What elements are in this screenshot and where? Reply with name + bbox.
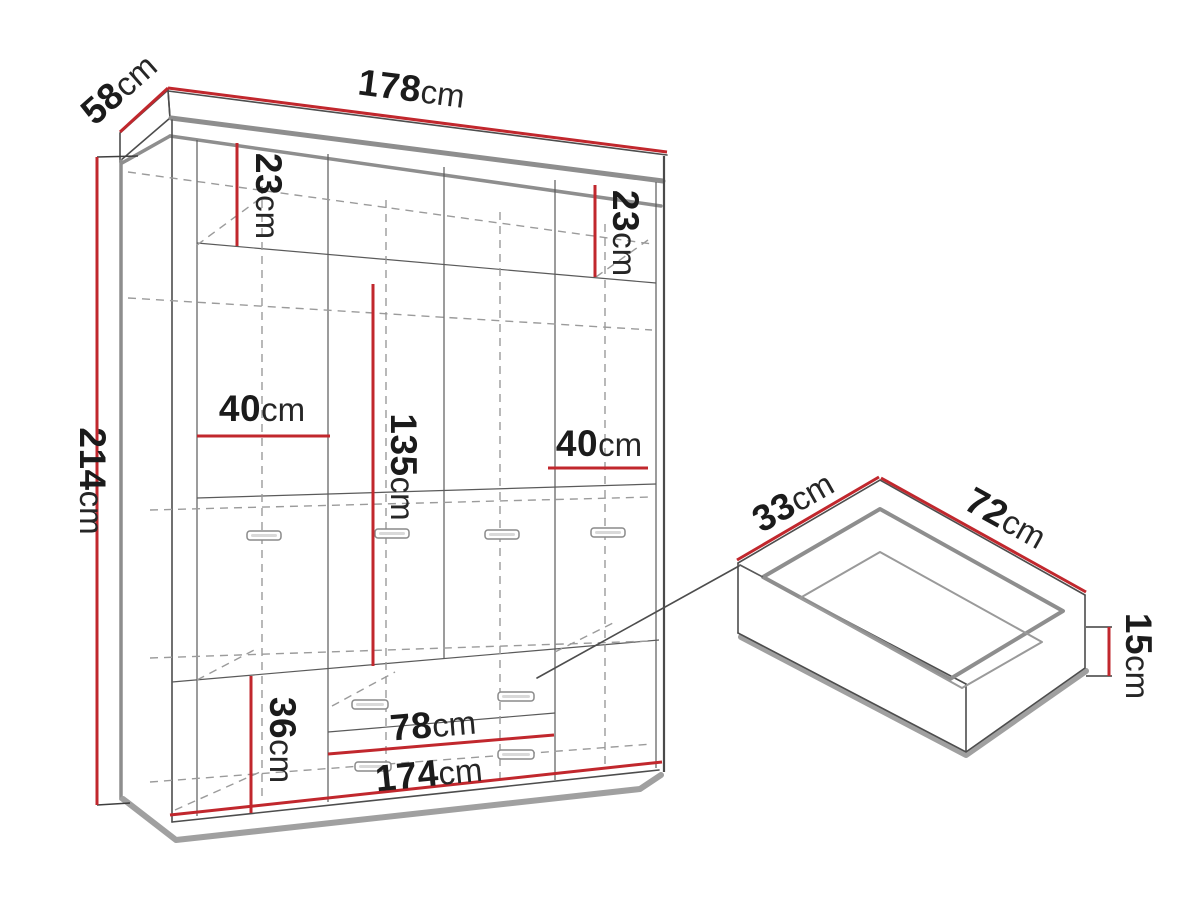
dim-top-compartment-right-label: 23cm [605,190,646,276]
dimension-labels: 178cm 58cm 214cm 23cm 23cm 40cm 40cm 135… [72,45,1159,800]
dim-width-top-label: 178cm [356,61,468,115]
diagram-canvas: 178cm 58cm 214cm 23cm 23cm 40cm 40cm 135… [0,0,1200,900]
dim-bottom-section-label: 36cm [262,697,303,783]
wardrobe-top-slab [120,90,667,206]
dim-inner-width-label: 174cm [373,748,484,799]
dim-side-section-right-label: 40cm [556,423,642,464]
wardrobe-door-dividers [328,154,555,668]
dim-height-label: 214cm [72,427,113,534]
dim-depth-label: 58cm [73,45,165,133]
dim-top-compartment-left-label: 23cm [248,153,289,239]
dim-hanging-space-label: 135cm [383,413,424,520]
dim-drawer-width-label: 78cm [388,701,477,749]
dim-drawer-width-detail-label: 72cm [958,479,1053,557]
wardrobe-dimension-diagram: 178cm 58cm 214cm 23cm 23cm 40cm 40cm 135… [0,0,1200,900]
pointer-line [537,566,739,678]
dim-side-section-left-label: 40cm [219,388,305,429]
dim-drawer-height-label: 15cm [1118,613,1159,699]
